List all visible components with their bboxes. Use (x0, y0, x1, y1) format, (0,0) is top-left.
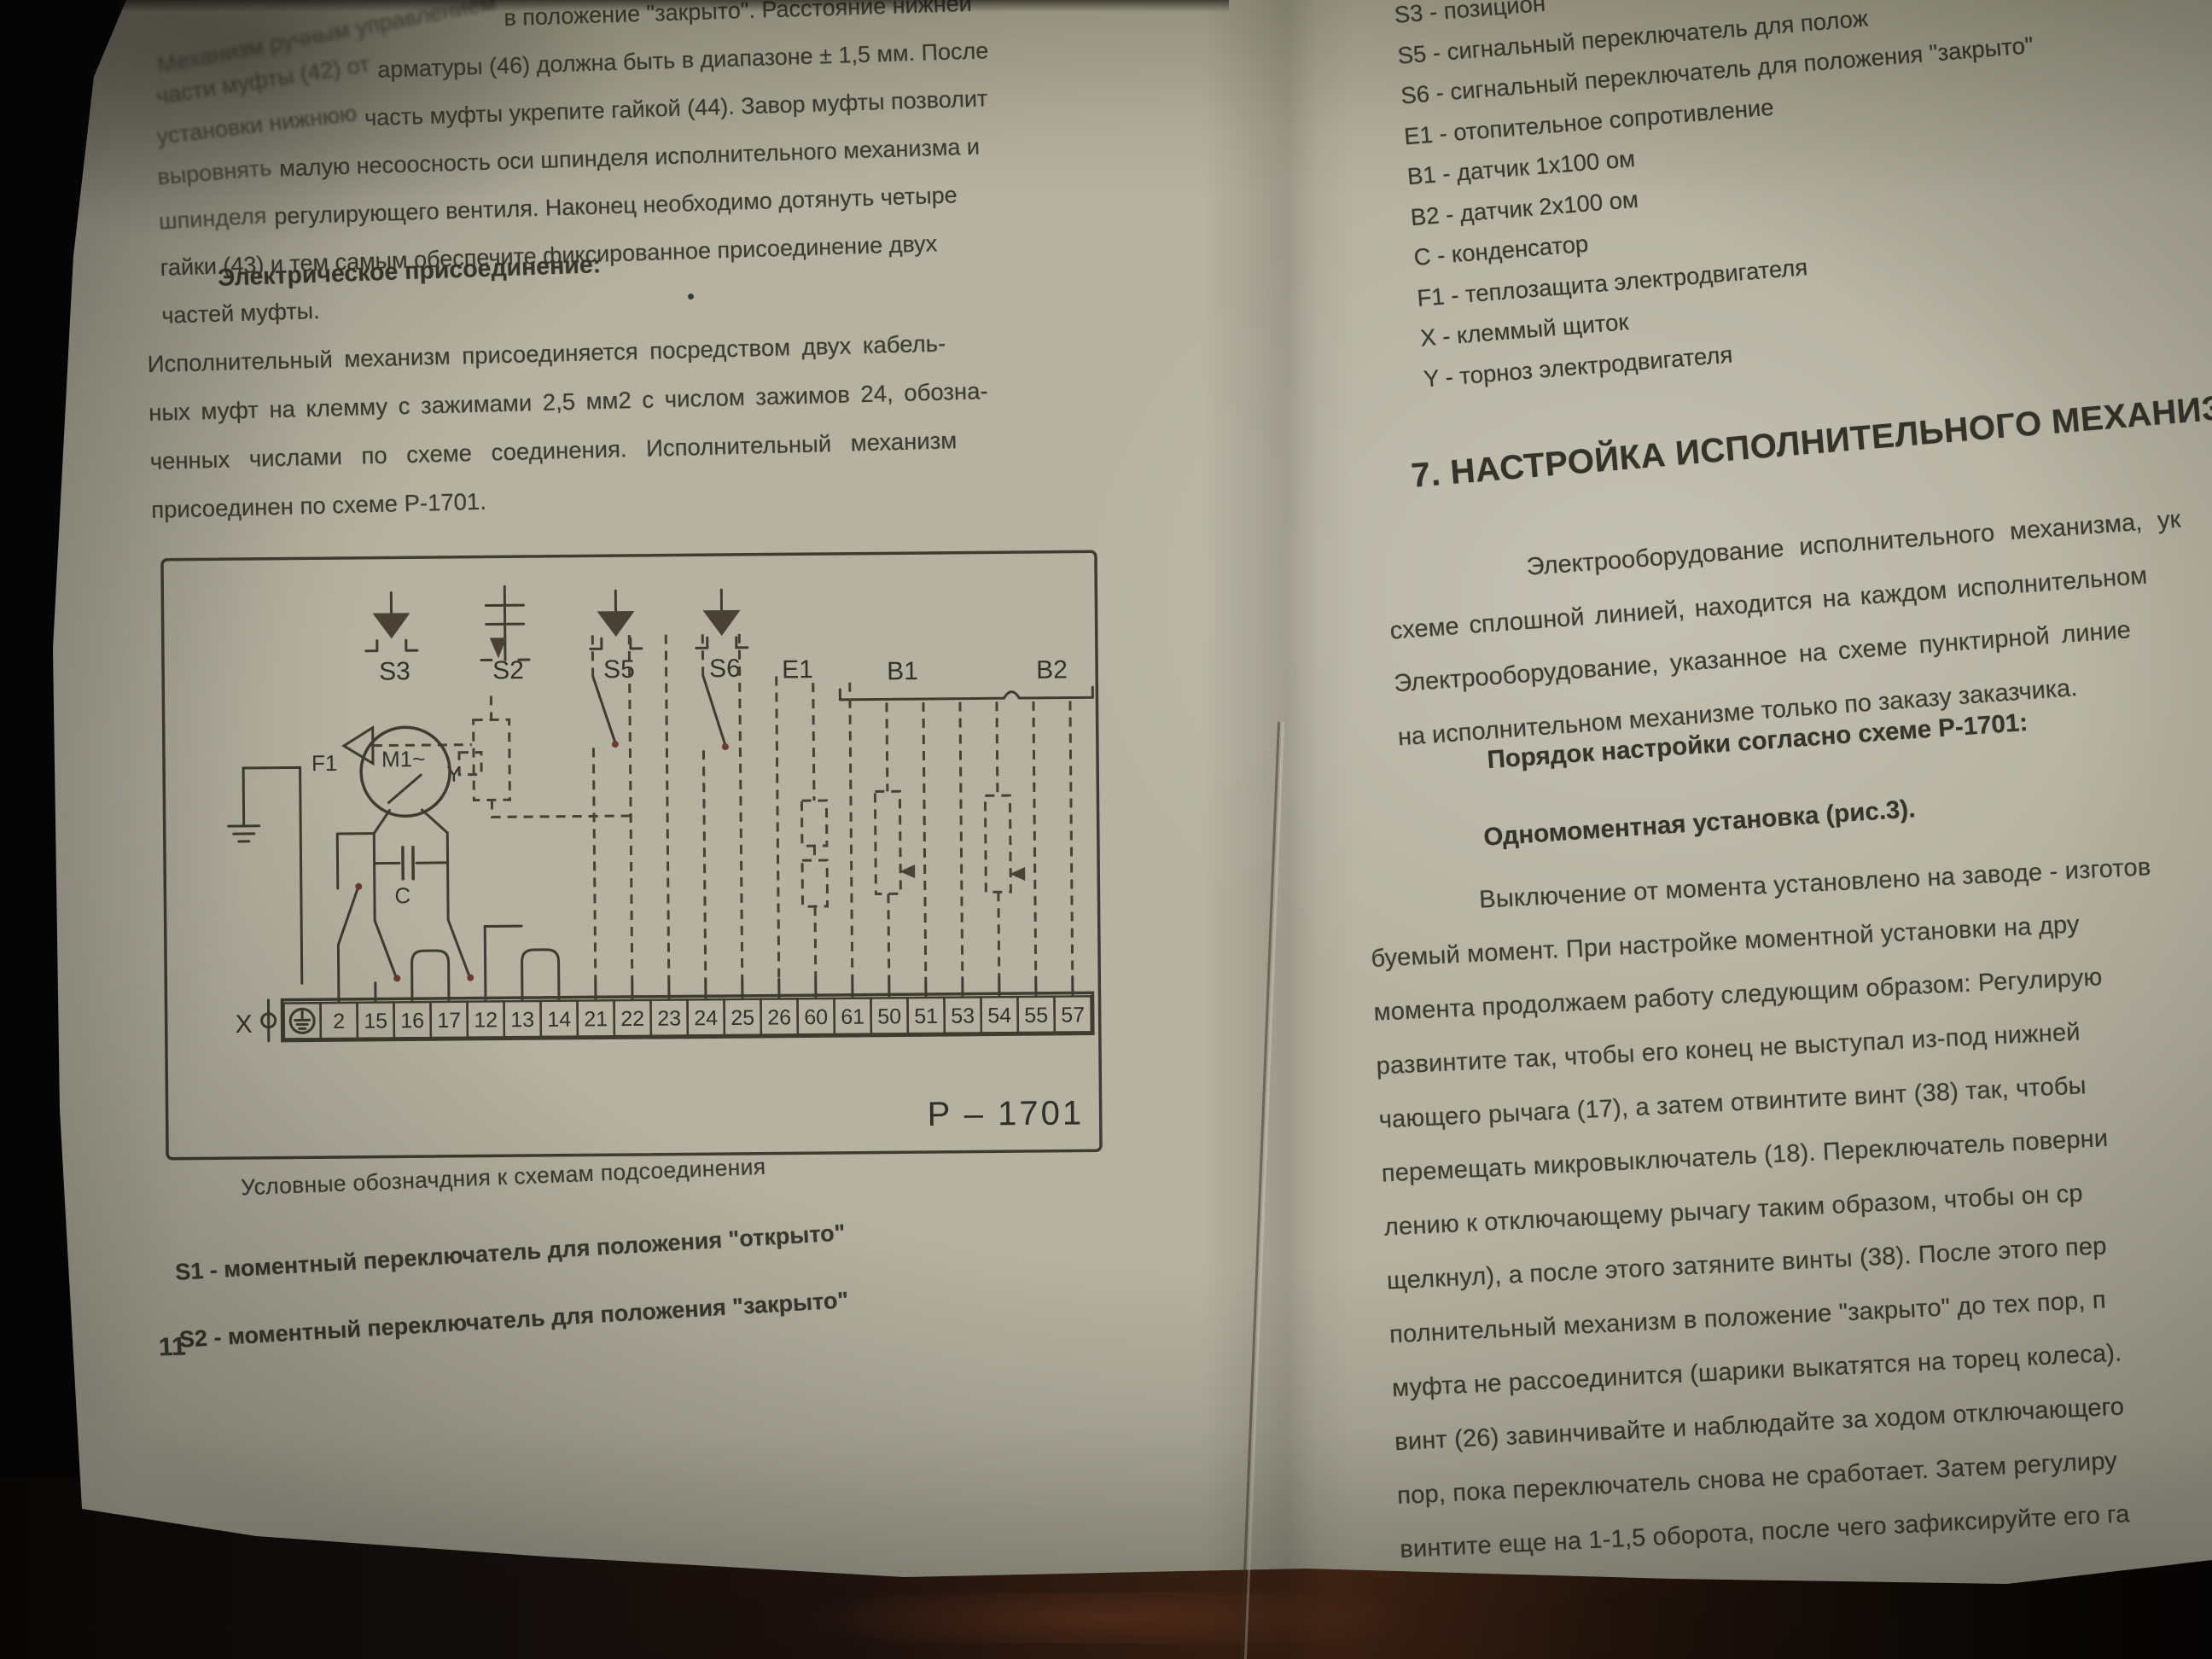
terminal-number: 26 (767, 1005, 791, 1029)
terminal-number: 21 (584, 1007, 608, 1031)
terminal-number: 15 (364, 1010, 387, 1033)
sensor-b2-resistor (985, 795, 1025, 892)
s1-s2-legend: S1 - моментный переключатель для положен… (173, 1199, 851, 1373)
shaft-symbol-icon (261, 1000, 275, 1041)
terminal-number: 12 (474, 1008, 498, 1032)
terminal-number: 14 (547, 1008, 571, 1032)
terminal-number: 17 (437, 1009, 461, 1033)
schematic-title: P – 1701 (927, 1094, 1084, 1133)
earth-branch (228, 767, 302, 984)
terminal-number: 55 (1024, 1004, 1048, 1027)
ground-terminal-icon (283, 1003, 320, 1039)
terminal-number: 23 (657, 1007, 681, 1031)
terminal-number: 13 (510, 1008, 534, 1032)
wiper-arrow-icon (1010, 867, 1025, 881)
terminal-number: 25 (731, 1006, 754, 1030)
label-m1: M1~ (381, 746, 426, 771)
page-number: 11 (158, 1332, 186, 1362)
dashed-wiring (592, 632, 1073, 981)
single-moment-subheading: Одномоментная установка (рис.3). (1482, 795, 1916, 853)
terminal-number: 24 (694, 1006, 718, 1030)
print-dot (688, 294, 694, 300)
terminal-number: 54 (987, 1004, 1011, 1027)
photo-of-manual: Механизм ручным управлениемв положение "… (0, 0, 2212, 1659)
left-connection-paragraph: Исполнительный механизм присоединяется п… (147, 314, 1142, 534)
wiring-schematic-p1701: S3 S2 S5 S6 E1 B1 B2 Y (156, 545, 1107, 1165)
top-edge-shadow (119, 0, 1229, 12)
right-procedure-paragraph: Выключение от момента установлено на зав… (1367, 841, 2184, 1577)
section-7-heading: 7. НАСТРОЙКА ИСПОЛНИТЕЛЬНОГО МЕХАНИЗМА (1410, 385, 2212, 496)
terminal-number: 61 (841, 1005, 864, 1029)
open-manual-pages: Механизм ручным управлениемв положение "… (0, 0, 2212, 1659)
label-f1: F1 (311, 750, 338, 776)
cam-switch-icon-s2 (480, 586, 529, 660)
terminal-cells: 2151617121314212223242526606150515354555… (320, 976, 1091, 1039)
terminal-number: 51 (914, 1004, 938, 1028)
label-s2: S2 (492, 656, 524, 684)
label-e1: E1 (782, 655, 813, 684)
right-component-legend: S3 - позицион S5 - сигнальный переключат… (1393, 0, 2058, 399)
terminal-number: 16 (400, 1009, 424, 1033)
label-s6: S6 (709, 655, 741, 683)
wiper-arrow-icon (899, 864, 915, 878)
label-c: C (394, 882, 410, 908)
label-b1: B1 (887, 657, 918, 685)
terminal-number: 57 (1061, 1003, 1085, 1027)
label-b2: B2 (1036, 656, 1068, 684)
terminal-number: 2 (333, 1010, 345, 1033)
b1-b2-bracket (840, 687, 1092, 700)
right-intro-paragraph: Электрооборудование исполнительного меха… (1384, 493, 2194, 765)
label-s3: S3 (379, 657, 410, 685)
terminal-number: 60 (804, 1005, 828, 1029)
cam-switch-icon-s3 (365, 592, 417, 651)
terminal-number: 50 (877, 1004, 901, 1028)
label-x: X (236, 1010, 253, 1039)
terminal-number: 22 (620, 1007, 644, 1031)
cam-switch-icon-s5 (590, 591, 642, 649)
sensor-b1-resistor (875, 791, 915, 894)
terminal-number: 53 (951, 1004, 975, 1027)
motor-wiring (337, 810, 448, 881)
